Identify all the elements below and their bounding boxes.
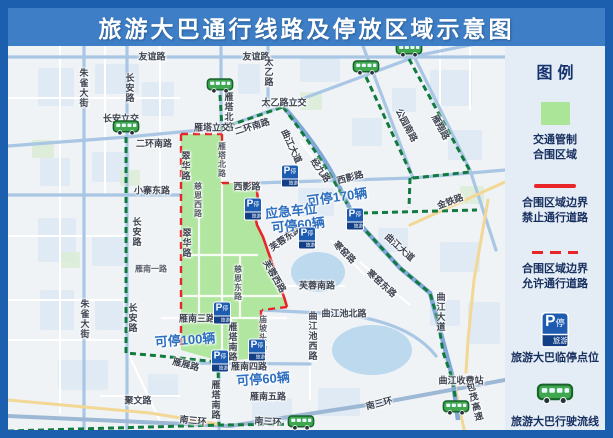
poster: 旅游大巴通行线路及停放区域示意图 (0, 0, 613, 438)
allowed-boundary-swatch (532, 251, 578, 254)
legend-title: 图例 (531, 59, 578, 83)
legend-parking-icon: P停 旅游大巴 (541, 312, 569, 348)
tour-bus-icon (442, 399, 470, 421)
legend-item-zone-label: 交通管制合围区域 (533, 133, 577, 163)
title-bar: 旅游大巴通行线路及停放区域示意图 (8, 8, 605, 46)
control-zone-swatch (541, 102, 570, 125)
legend-bus-icon (536, 382, 574, 410)
tour-bus-icon (206, 77, 234, 99)
legend-item-allowed-label: 合围区域边界允许通行道路 (522, 262, 588, 292)
legend-item-bus-label: 旅游大巴行驶流线 (511, 415, 599, 430)
legend-panel: 图例 交通管制合围区域 合围区域边界禁止通行道路 合围区域边界允许通行道路 P停… (505, 46, 605, 430)
tour-bus-icon (112, 119, 140, 141)
tour-bus-icon (352, 59, 380, 81)
legend-item-parking-label: 旅游大巴临停点位 (511, 351, 599, 366)
page-title: 旅游大巴通行线路及停放区域示意图 (99, 10, 515, 44)
prohibited-boundary-swatch (534, 184, 576, 187)
tour-bus-icon (287, 414, 315, 436)
legend-item-prohibited-label: 合围区域边界禁止通行道路 (522, 196, 588, 226)
